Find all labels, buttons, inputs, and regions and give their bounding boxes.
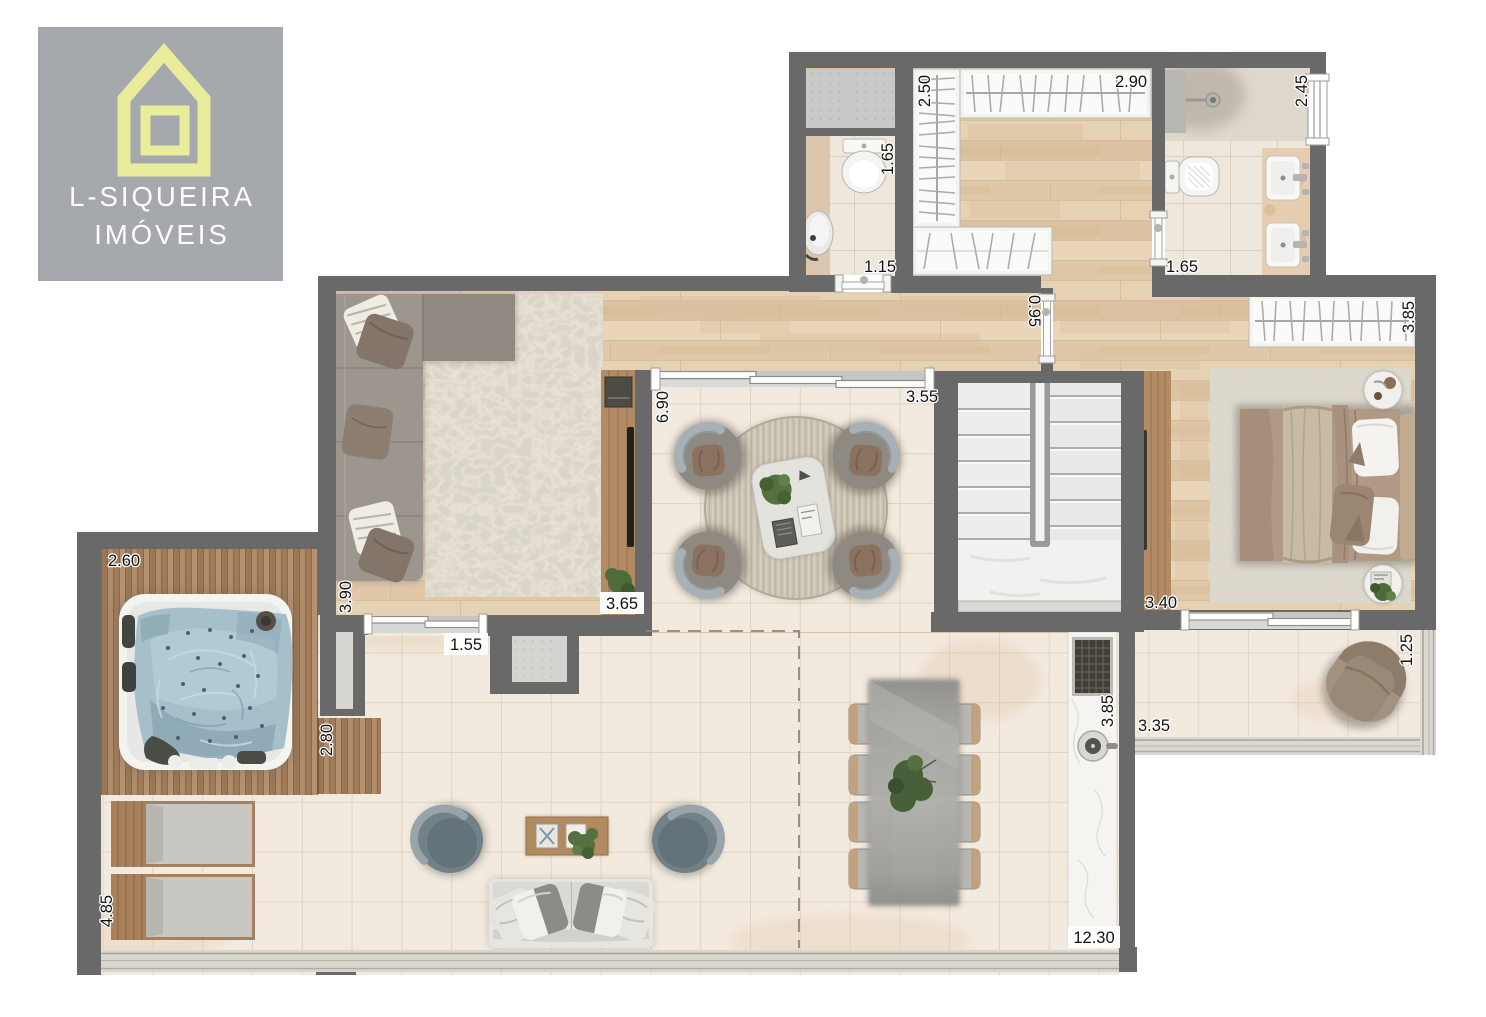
svg-text:3.40: 3.40	[1145, 594, 1177, 612]
svg-text:1.65: 1.65	[1166, 258, 1198, 276]
svg-text:4.85: 4.85	[98, 895, 116, 927]
svg-text:0.95: 0.95	[1025, 295, 1043, 327]
svg-text:6.90: 6.90	[654, 391, 672, 423]
svg-text:3.65: 3.65	[606, 595, 638, 613]
svg-text:L-SIQUEIRA: L-SIQUEIRA	[69, 181, 255, 212]
svg-text:2.45: 2.45	[1293, 75, 1311, 107]
svg-text:1.65: 1.65	[879, 143, 897, 175]
svg-text:2.50: 2.50	[916, 75, 934, 107]
svg-text:12.30: 12.30	[1073, 929, 1114, 947]
svg-text:3.35: 3.35	[1138, 717, 1170, 735]
svg-text:3.55: 3.55	[906, 388, 938, 406]
svg-text:1.25: 1.25	[1398, 634, 1416, 666]
svg-text:1.15: 1.15	[864, 258, 896, 276]
svg-text:2.60: 2.60	[108, 552, 140, 570]
svg-text:3.90: 3.90	[337, 581, 355, 613]
svg-text:IMÓVEIS: IMÓVEIS	[94, 219, 230, 250]
svg-text:3.85: 3.85	[1099, 695, 1117, 727]
svg-text:2.80: 2.80	[318, 724, 336, 756]
svg-text:2.90: 2.90	[1115, 73, 1147, 91]
svg-text:3.85: 3.85	[1400, 301, 1418, 333]
svg-text:1.55: 1.55	[450, 636, 482, 654]
